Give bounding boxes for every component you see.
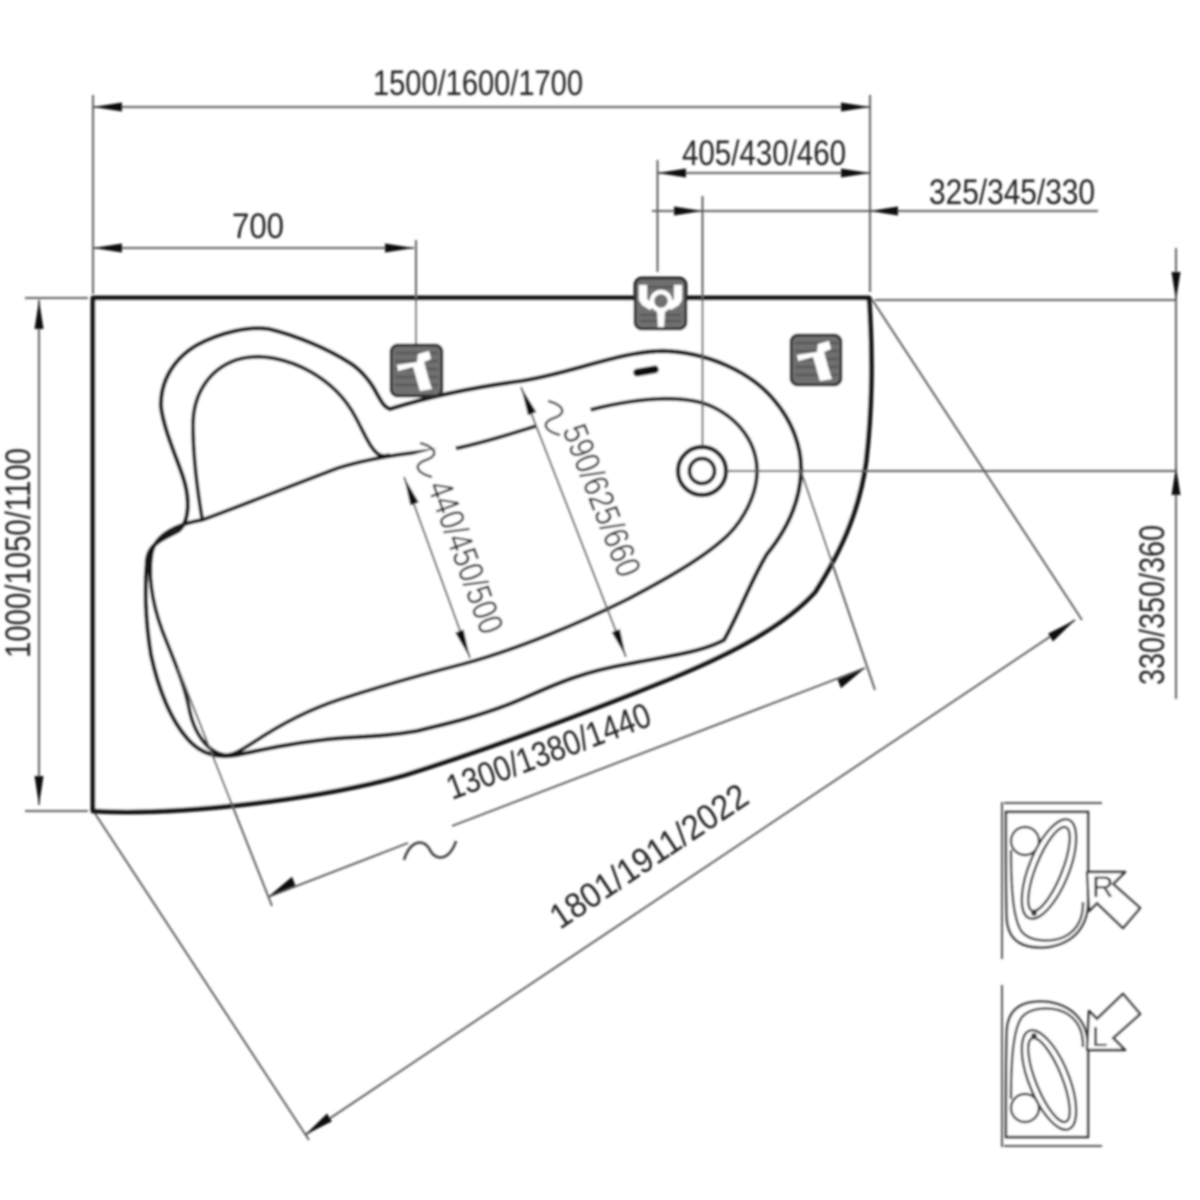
svg-text:330/350/360: 330/350/360 <box>1133 525 1172 685</box>
svg-text:700: 700 <box>232 207 284 246</box>
svg-text:R: R <box>1092 871 1114 904</box>
svg-text:1000/1050/1100: 1000/1050/1100 <box>0 448 38 658</box>
svg-text:L: L <box>1092 1021 1108 1052</box>
svg-text:325/345/330: 325/345/330 <box>929 173 1095 212</box>
svg-text:1500/1600/1700: 1500/1600/1700 <box>373 64 583 103</box>
svg-text:405/430/460: 405/430/460 <box>682 134 846 173</box>
